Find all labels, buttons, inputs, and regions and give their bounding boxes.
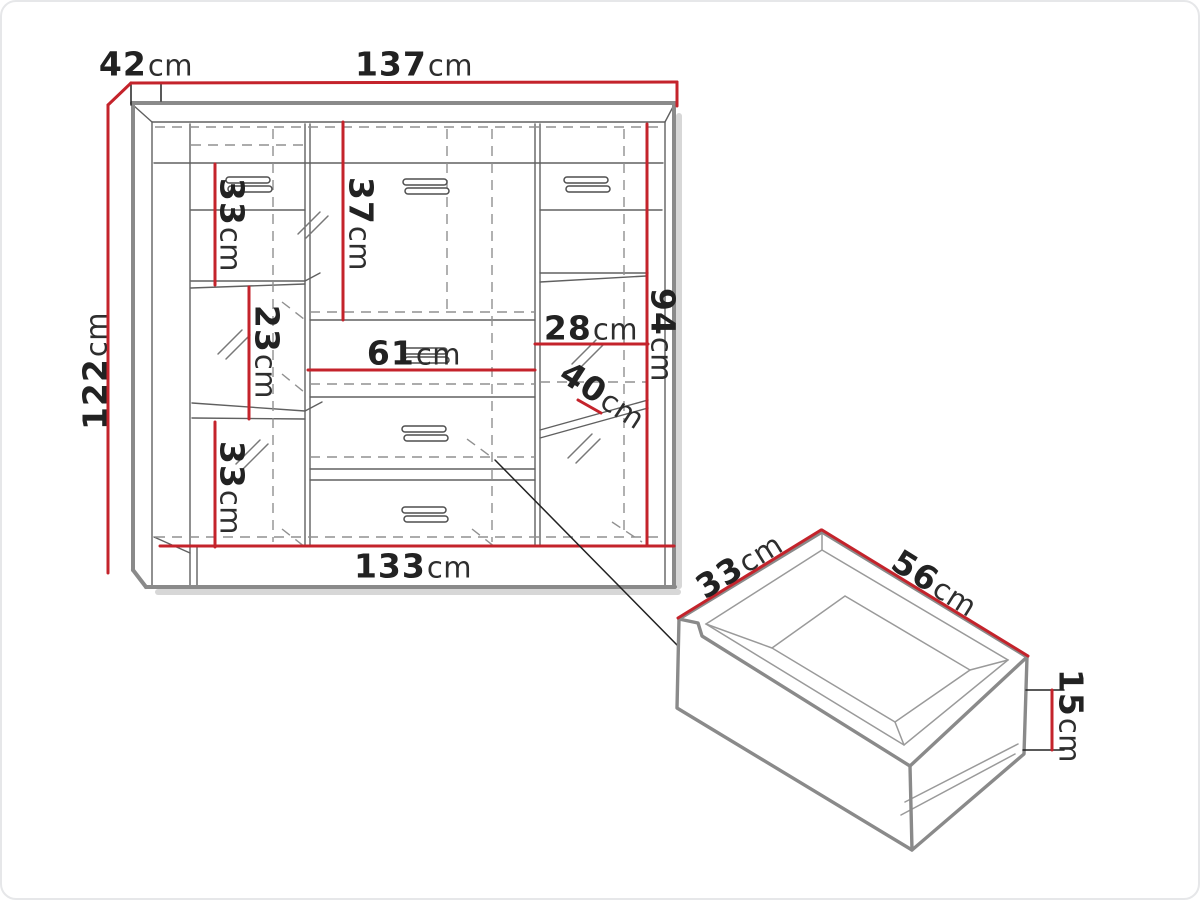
dimension-label-left-shelf-bottom: 33cm xyxy=(216,441,249,535)
handle-icon-drawer-2 xyxy=(402,507,448,522)
dimension-label-cabinet-width: 137cm xyxy=(355,48,473,81)
diagram-canvas: 42cm 137cm 122cm 33cm 37cm 23cm 61cm 28c… xyxy=(0,0,1200,900)
dimension-label-cabinet-height: 122cm xyxy=(79,312,112,430)
dimension-label-drawer-height: 15cm xyxy=(1055,669,1088,763)
pointer-line xyxy=(495,460,678,646)
dimension-label-center-niche: 61cm xyxy=(367,337,461,370)
dimension-label-left-shelf-top: 33cm xyxy=(216,178,249,272)
handle-icon-drawer-1 xyxy=(402,426,448,441)
dimension-label-left-shelf-mid: 23cm xyxy=(251,305,284,399)
dimension-label-cabinet-width-bottom: 133cm xyxy=(354,550,472,583)
handle-icon-center-door xyxy=(403,179,449,194)
diagram-linework xyxy=(2,2,1200,900)
dimension-label-center-door: 37cm xyxy=(345,177,378,271)
handle-icon-right-door xyxy=(564,177,610,192)
dimension-label-right-inner-height: 94cm xyxy=(647,288,680,382)
dimension-label-right-shelf: 28cm xyxy=(544,312,638,345)
dimension-label-cabinet-depth: 42cm xyxy=(99,48,193,81)
